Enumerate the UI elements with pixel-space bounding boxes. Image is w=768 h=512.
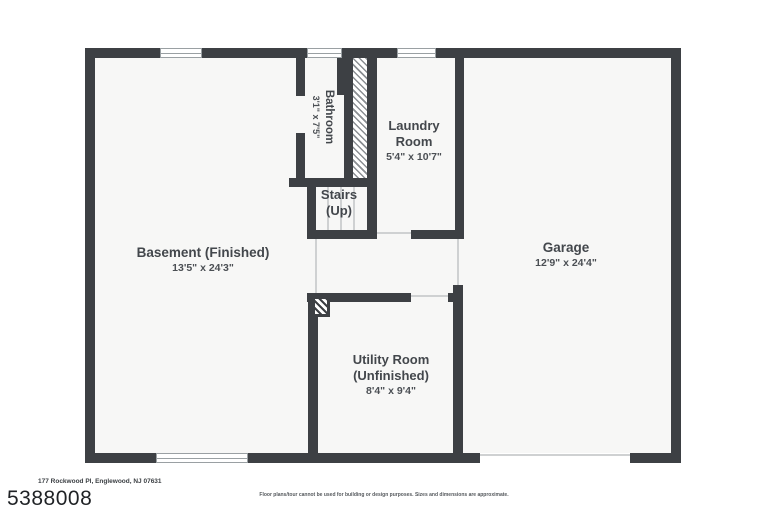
window-top-basement [160, 48, 202, 58]
room-label-stairs: Stairs (Up) [321, 187, 357, 219]
garage-dims: 12'9" x 24'4" [535, 256, 597, 270]
room-label-laundry: Laundry Room 5'4" x 10'7" [386, 118, 442, 164]
bathroom-name: Bathroom [322, 90, 336, 144]
listing-id: 5388008 [7, 487, 92, 511]
window-top-laundry [397, 48, 436, 58]
wall-utility-left [308, 293, 318, 463]
wall-outer-right [671, 48, 681, 463]
utility-door-opening [411, 295, 448, 297]
laundry-door-opening [377, 232, 411, 234]
basement-name: Basement (Finished) [137, 244, 270, 261]
wall-stairs-bottom [307, 230, 377, 239]
stairs-name-line1: Stairs [321, 187, 357, 203]
hall-garage-opening [457, 239, 459, 285]
wall-laundry-left [367, 58, 377, 239]
disclaimer-text: Floor plans/tour cannot be used for buil… [259, 492, 508, 498]
laundry-name-line2: Room [386, 134, 442, 150]
door-symbol [315, 299, 327, 314]
room-label-garage: Garage 12'9" x 24'4" [535, 239, 597, 270]
room-label-utility: Utility Room (Unfinished) 8'4" x 9'4" [353, 352, 430, 398]
wall-bathroom-bottom [289, 178, 372, 187]
utility-name-line1: Utility Room [353, 352, 430, 368]
wall-garage-left-upper [455, 58, 464, 239]
utility-dims: 8'4" x 9'4" [353, 384, 430, 398]
room-label-bathroom: Bathroom 3'1" x 7'5" [310, 90, 336, 144]
utility-name-line2: (Unfinished) [353, 368, 430, 384]
basement-dims: 13'5" x 24'3" [137, 261, 270, 275]
stairs-hatch-strip [353, 58, 367, 178]
laundry-name-line1: Laundry [386, 118, 442, 134]
laundry-dims: 5'4" x 10'7" [386, 150, 442, 164]
garage-name: Garage [535, 239, 597, 256]
basement-hall-opening [315, 239, 317, 293]
wall-bathroom-duct-block [337, 58, 353, 95]
property-address: 177 Rockwood Pl, Englewood, NJ 07631 [38, 478, 162, 485]
window-top-bathroom [307, 48, 342, 58]
wall-bathroom-left-upper [296, 58, 305, 96]
wall-utility-top-corner [448, 293, 463, 302]
wall-outer-left [85, 48, 95, 463]
bathroom-dims: 3'1" x 7'5" [310, 90, 322, 144]
floorplan-canvas: Basement (Finished) 13'5" x 24'3" Garage… [0, 0, 768, 512]
stairs-name-line2: (Up) [321, 203, 357, 219]
wall-garage-left-lower [453, 285, 463, 463]
room-label-basement: Basement (Finished) 13'5" x 24'3" [137, 244, 270, 275]
window-bottom-basement [156, 453, 248, 463]
garage-door-line [480, 454, 630, 456]
